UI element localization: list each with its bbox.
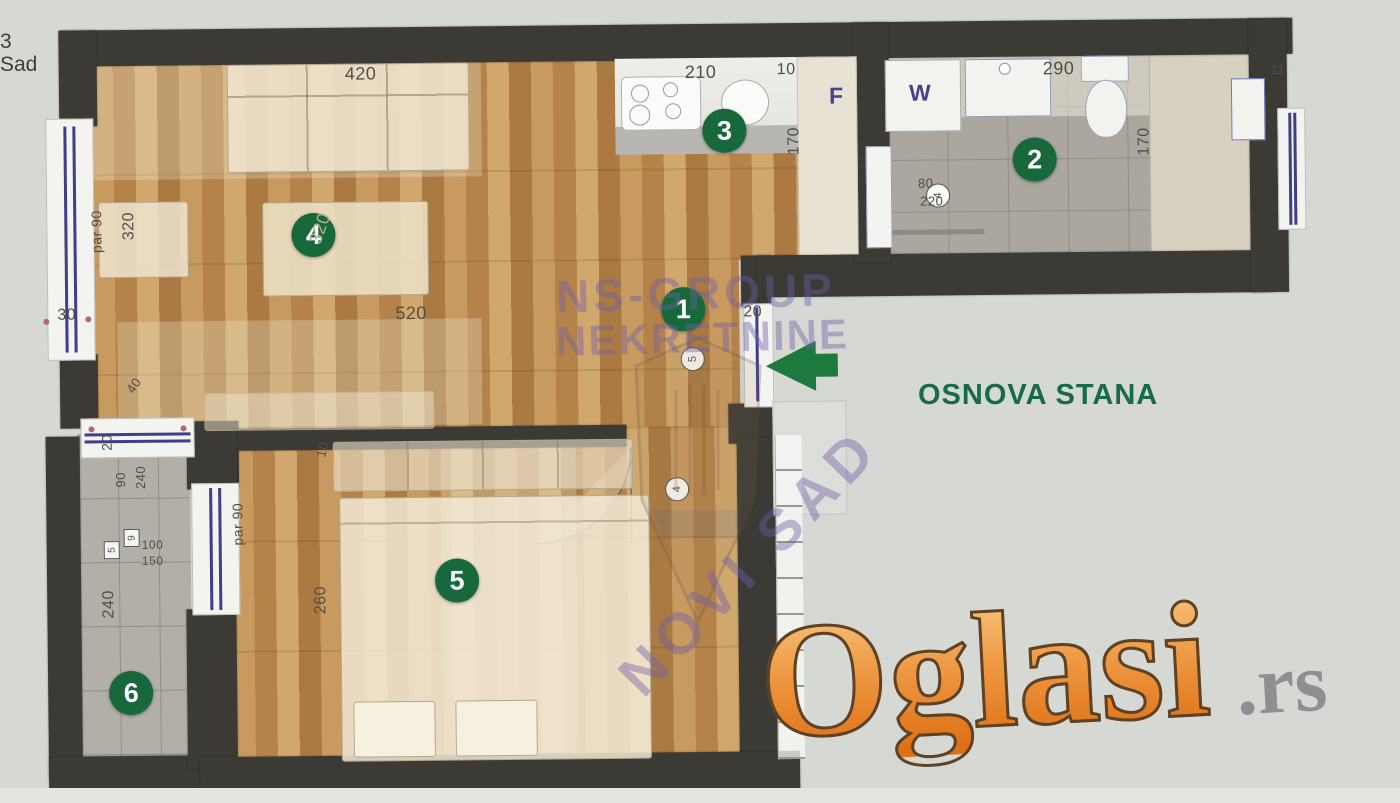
room-badge-bathroom: 2 xyxy=(1012,137,1056,181)
room-badge-kitchen: 3 xyxy=(702,109,746,153)
dim-sofa: 420 xyxy=(345,63,377,84)
dim-parapet-terrace: par 90 xyxy=(229,503,245,546)
hob-burner xyxy=(631,85,649,103)
dim-terrace-c: 100 xyxy=(142,538,164,552)
hob-burner xyxy=(663,82,678,97)
dim-bath-fix-b: 220 xyxy=(920,193,943,208)
wardrobe xyxy=(333,439,634,492)
bathroom-door xyxy=(866,146,893,248)
bed-pillow xyxy=(455,700,538,757)
dim-bathroom: 290 xyxy=(1043,58,1075,79)
plan-box-marker: 9 xyxy=(124,529,140,547)
dim-terrace-len: 240 xyxy=(100,590,118,618)
window-bathroom-right xyxy=(1277,108,1306,230)
room-badge-bedroom: 5 xyxy=(435,558,479,602)
armchair xyxy=(98,201,189,278)
photo-corner-line2: Sad xyxy=(0,53,37,76)
survey-dot xyxy=(88,426,94,432)
room-badge-terrace: 6 xyxy=(109,671,153,715)
plan-box-marker: 5 xyxy=(104,541,120,559)
dim-kitchen-gap: 10 xyxy=(777,61,796,79)
wall-terrace-bedroom-lower xyxy=(186,609,238,770)
toilet-bowl xyxy=(1085,80,1128,138)
dim-mid-window-a: 20 xyxy=(99,434,115,451)
dim-window-sill: 30 xyxy=(57,307,76,325)
plan-title: OSNOVA STANA xyxy=(918,379,1158,412)
dim-bath-fix-a: 80 xyxy=(918,176,934,191)
survey-dot xyxy=(85,316,91,322)
dim-parapet-left: par 90 xyxy=(88,210,104,253)
coffee-table xyxy=(262,201,429,297)
watermark-portal-tld: .rs xyxy=(1234,634,1330,736)
window-living-terrace xyxy=(80,417,194,458)
shower-unit xyxy=(1231,78,1266,140)
dim-kitchen-depth: 170 xyxy=(785,127,803,155)
dim-living-length: 520 xyxy=(395,303,427,324)
hob-burner xyxy=(629,105,650,126)
sideboard xyxy=(204,391,434,431)
hob-burner xyxy=(665,103,681,119)
toilet-tank xyxy=(1081,55,1129,82)
survey-dot xyxy=(180,425,186,431)
dim-terrace-d: 150 xyxy=(142,554,164,568)
photo-corner-line1: 3 xyxy=(0,30,37,53)
survey-dot xyxy=(43,319,49,325)
photo-corner-text: 3 Sad xyxy=(0,30,37,76)
dim-kitchen: 210 xyxy=(685,62,717,83)
photo-bottom-edge xyxy=(0,788,1400,803)
bed-pillow xyxy=(353,701,436,758)
floor-plan-photo: W 1 2 3 4 5 6 5 4 4 5 9 4 xyxy=(0,0,1400,803)
dim-terrace-b: 240 xyxy=(133,466,148,489)
wall-terrace-left xyxy=(46,437,84,779)
dim-bathroom-depth: 170 xyxy=(1135,127,1153,155)
dim-bed-depth: 260 xyxy=(312,586,330,614)
washer-label: W xyxy=(909,80,931,107)
wall-left-upper xyxy=(58,30,97,126)
dim-right-wall: 11 xyxy=(1271,62,1286,77)
dim-living-window: 320 xyxy=(120,212,138,240)
kitchen-tall-unit xyxy=(797,56,859,255)
towel-rail xyxy=(892,229,984,235)
fridge-label: F xyxy=(829,82,843,109)
sink-faucet xyxy=(999,63,1011,75)
watermark-portal-name: Oglasi xyxy=(756,576,1213,764)
watermark-agency-word: NEKRETNINE xyxy=(555,310,849,366)
dim-terrace-a: 90 xyxy=(113,472,128,488)
